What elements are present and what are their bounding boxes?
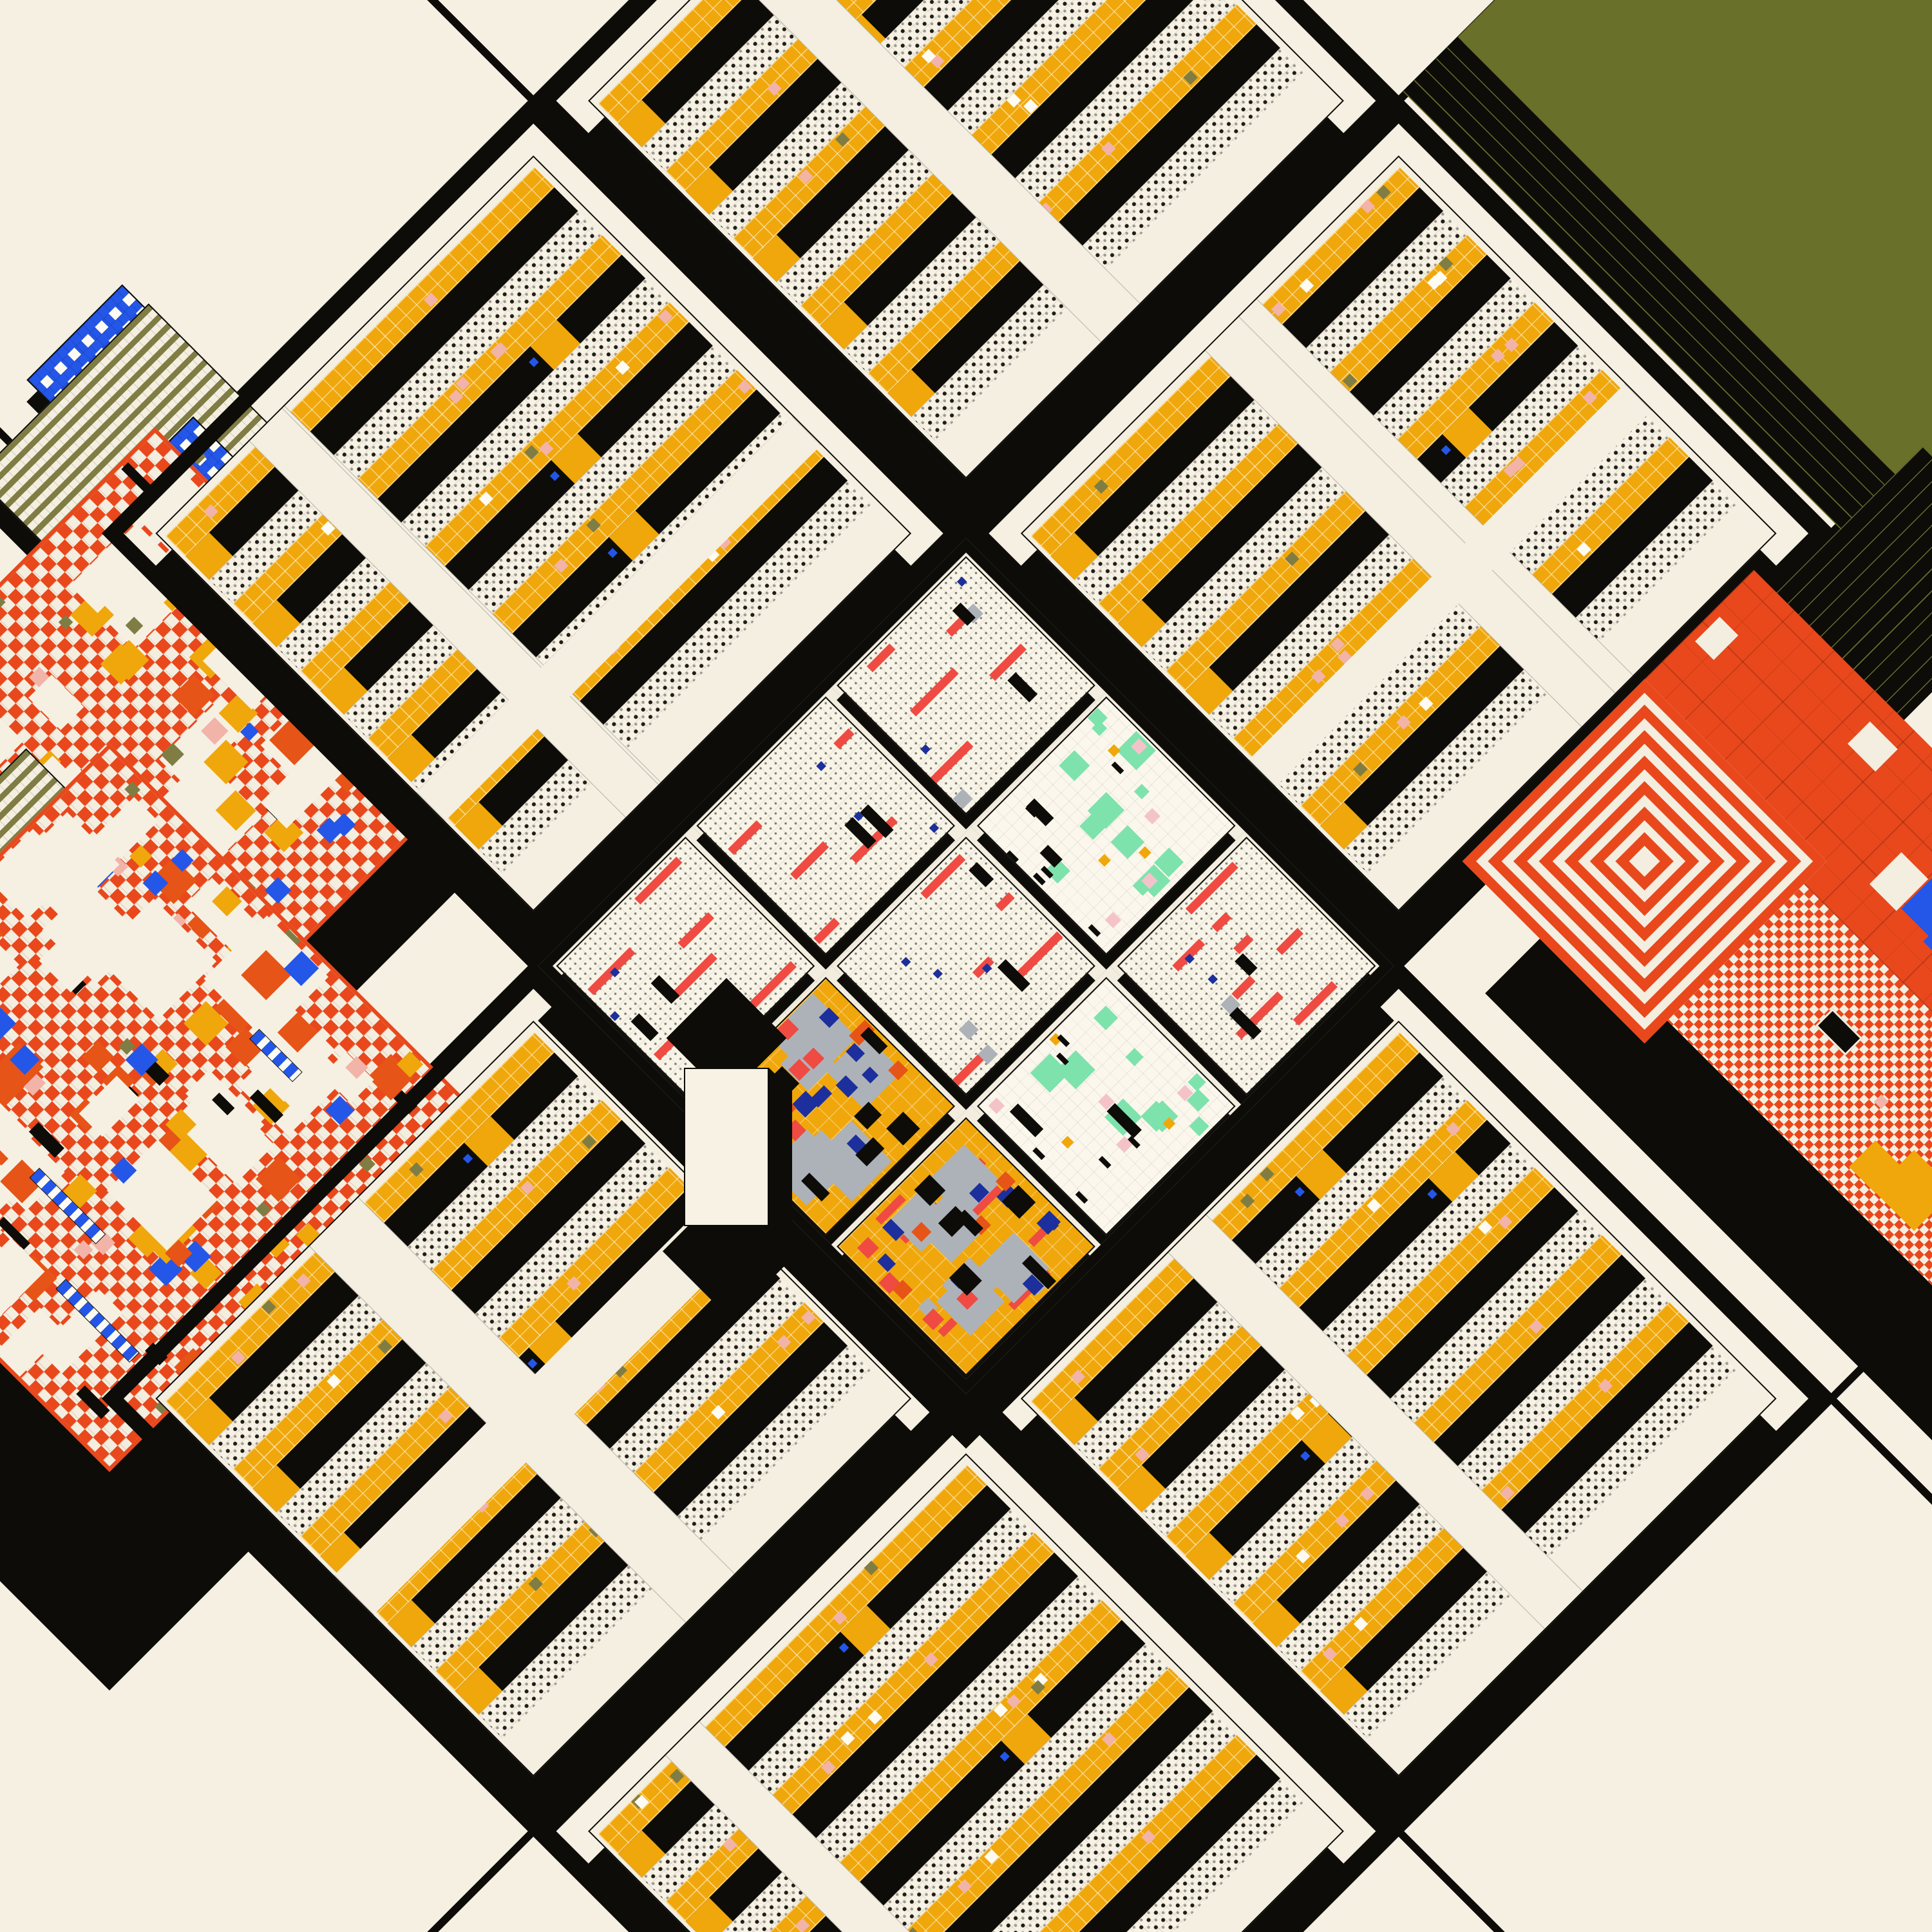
screen-space-layer bbox=[0, 0, 1932, 1932]
monolith-side-face bbox=[769, 1068, 792, 1249]
isometric-city-artwork bbox=[0, 0, 1932, 1932]
monolith-front-face bbox=[684, 1068, 769, 1226]
